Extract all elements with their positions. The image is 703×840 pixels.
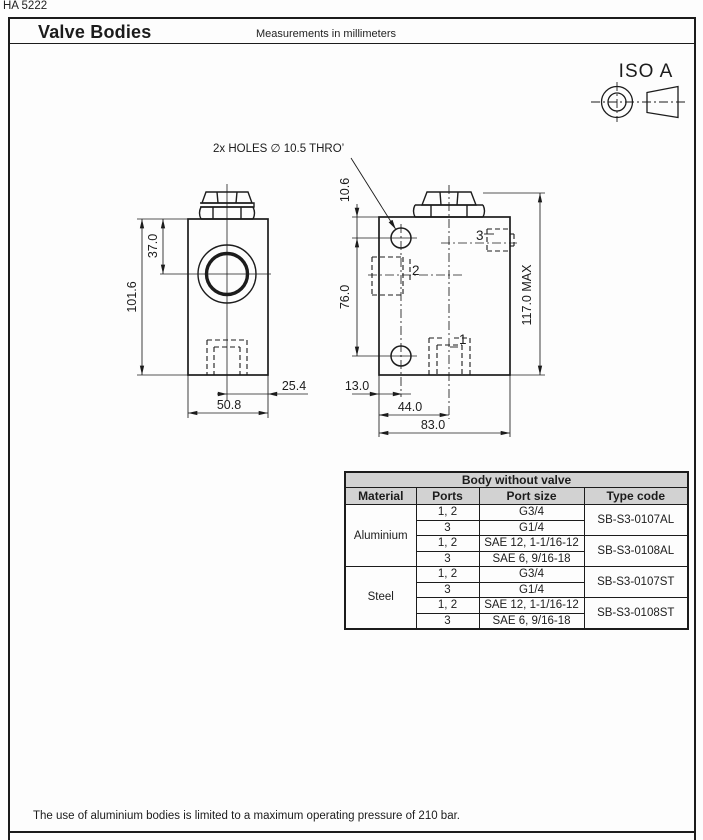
footnote: The use of aluminium bodies is limited t…: [33, 810, 460, 822]
dim-37-0: 37.0: [146, 234, 160, 258]
dim-13-0: 13.0: [345, 379, 369, 393]
dim-44-0: 44.0: [398, 400, 422, 414]
port-size-cell: SAE 12, 1-1/16-12: [479, 598, 584, 614]
port-size-cell: G1/4: [479, 520, 584, 536]
table-row: Steel 1, 2 G3/4 SB-S3-0107ST: [345, 567, 688, 583]
col-header-port-size: Port size: [479, 488, 584, 505]
ports-cell: 1, 2: [416, 598, 479, 614]
body-without-valve-table: Body without valve Material Ports Port s…: [344, 471, 689, 630]
ports-cell: 3: [416, 551, 479, 567]
col-header-material: Material: [345, 488, 416, 505]
type-code-cell: SB-S3-0107ST: [584, 567, 688, 598]
measurements-note: Measurements in millimeters: [256, 28, 396, 40]
holes-note-text: 2x HOLES ∅ 10.5 THRO’: [213, 143, 344, 155]
material-cell: Aluminium: [345, 505, 416, 567]
port-label-2: 2: [412, 263, 420, 278]
ports-cell: 1, 2: [416, 567, 479, 583]
dim-25-4: 25.4: [282, 379, 306, 393]
page-title: Valve Bodies: [38, 22, 151, 43]
port-size-cell: SAE 12, 1-1/16-12: [479, 536, 584, 552]
side-extension-lines: [352, 193, 545, 437]
port-size-cell: G3/4: [479, 505, 584, 521]
type-code-cell: SB-S3-0108ST: [584, 598, 688, 629]
dim-10-6: 10.6: [338, 178, 352, 202]
dim-50-8: 50.8: [217, 398, 241, 412]
col-header-type-code: Type code: [584, 488, 688, 505]
front-body-outline: [188, 219, 268, 375]
ports-cell: 3: [416, 582, 479, 598]
table-title: Body without valve: [345, 472, 688, 488]
side-body-outline: [379, 217, 510, 375]
port-size-cell: G1/4: [479, 582, 584, 598]
side-dimensions: [352, 193, 540, 433]
side-view: 10.6 76.0 117.0 MAX 13.0 44.0 83.0 2 3 1: [338, 178, 545, 437]
col-header-ports: Ports: [416, 488, 479, 505]
port-size-cell: SAE 6, 9/16-18: [479, 551, 584, 567]
port-label-1: 1: [459, 332, 467, 347]
type-code-cell: SB-S3-0107AL: [584, 505, 688, 536]
iso-label: ISO A: [619, 61, 674, 82]
iso-projection-symbol: ISO A: [591, 61, 686, 122]
ports-cell: 1, 2: [416, 536, 479, 552]
ports-cell: 1, 2: [416, 505, 479, 521]
port-size-cell: SAE 6, 9/16-18: [479, 613, 584, 629]
front-view: 101.6 37.0 25.4 50.8: [125, 184, 308, 418]
header-bar: Valve Bodies Measurements in millimeters: [8, 17, 696, 44]
technical-drawing: ISO A 2x HOLES ∅ 10.5 THRO’: [0, 0, 703, 840]
section-divider: [8, 831, 696, 833]
ports-cell: 3: [416, 613, 479, 629]
dim-83-0: 83.0: [421, 418, 445, 432]
dim-117-0-max: 117.0 MAX: [520, 264, 534, 326]
dim-101-6: 101.6: [125, 281, 139, 312]
port-size-cell: G3/4: [479, 567, 584, 583]
port-label-3: 3: [476, 228, 484, 243]
table-row: Aluminium 1, 2 G3/4 SB-S3-0107AL: [345, 505, 688, 521]
ports-cell: 3: [416, 520, 479, 536]
port-2-hidden: [372, 257, 410, 295]
material-cell: Steel: [345, 567, 416, 629]
dim-76-0: 76.0: [338, 285, 352, 309]
type-code-cell: SB-S3-0108AL: [584, 536, 688, 567]
